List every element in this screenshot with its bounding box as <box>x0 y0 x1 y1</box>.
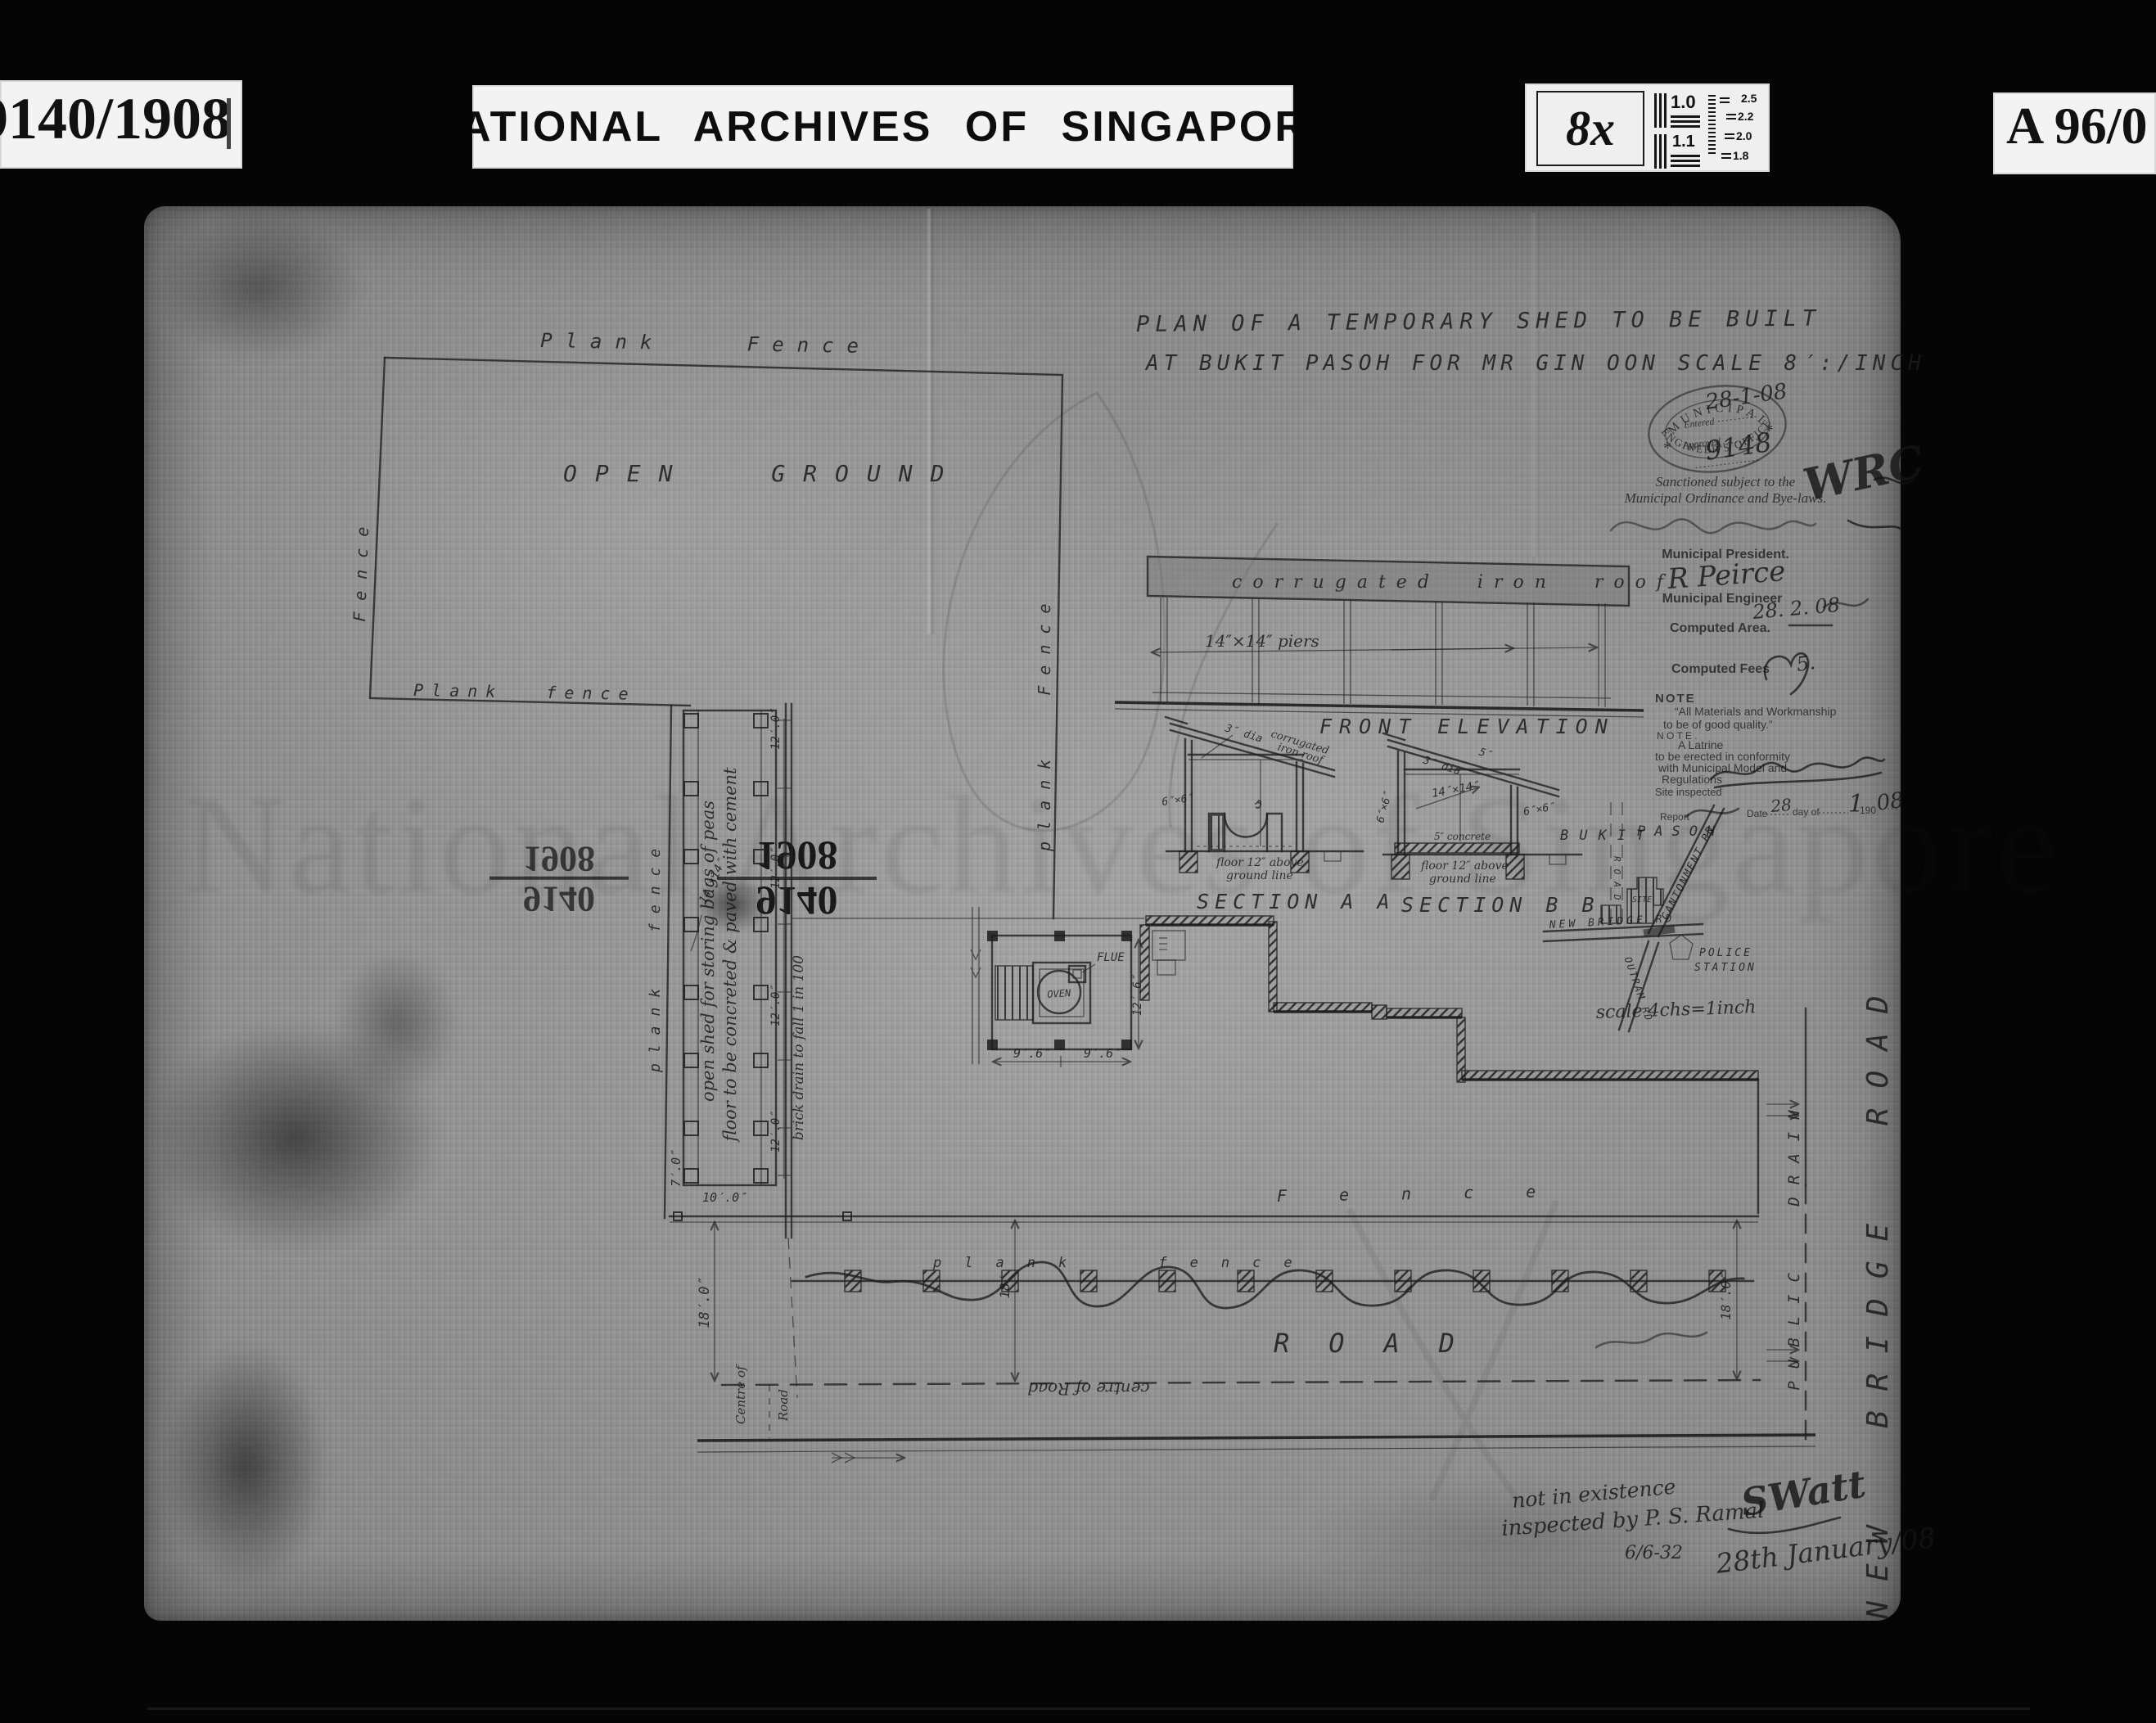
post-size-label: 6″×6″ <box>1522 801 1556 819</box>
shed-bay-dimension: 12′.0″ <box>769 847 783 889</box>
post-size-label: 14″×14″ <box>1431 779 1481 801</box>
new-bridge-road-label: NEW BRIDGE ROAD <box>1861 976 1895 1619</box>
note-quality-line1: “All Materials and Workmanship <box>1675 705 1837 718</box>
floor-note: ground line <box>1429 873 1496 886</box>
plank-fence-letters-mid: plank fence <box>932 1255 1315 1271</box>
brick-drain: brick drain to fall 1 in 100 <box>786 704 807 1398</box>
date-label: Date <box>1747 808 1768 819</box>
sanction-line1: Sanctioned subject to the <box>1656 474 1796 489</box>
shed-use-note-line1: open shed for storing bags of peas <box>698 801 718 1102</box>
shed-width-dimension: 10′.0″ <box>702 1190 747 1205</box>
floor-note: floor 12″ above <box>1420 859 1509 873</box>
sanction-line2: Municipal Ordinance and Bye-laws. <box>1624 490 1827 506</box>
fence-label-left: Fence <box>350 515 373 622</box>
boundary-wall <box>1140 916 1758 1213</box>
front-elevation-caption: FRONT ELEVATION <box>1319 715 1615 738</box>
concrete-note: 5″ concrete <box>1434 831 1491 842</box>
computed-area-label: Computed Area. <box>1670 621 1770 635</box>
day-of-label: day of <box>1793 806 1820 818</box>
latrine-outline <box>1152 931 1185 960</box>
centre-of-road-vertical-2: Road <box>776 1389 791 1422</box>
date-year-print: 190 <box>1860 805 1876 816</box>
corrugated-roof-label: corrugated iron roof <box>1232 572 1674 593</box>
plank-fence-label-right: plank Fence <box>1035 593 1054 852</box>
road-setback-dimension-left: 18′.0″ <box>697 1278 713 1328</box>
post-size-label: 6″×6″ <box>1161 792 1194 809</box>
road-setback-dimension-mid: 18′ <box>997 1275 1013 1299</box>
open-shed: 12′.0″ 12′.0″ 12′.0″ 12′.0″ 10′.0″ 14″×1… <box>669 708 791 1205</box>
computed-fees-value: 5. <box>1795 651 1817 676</box>
archival-scan-page: 9140/1908 NATIONAL ARCHIVES OF SINGAPORE… <box>0 0 2156 1723</box>
plan-date: 28th January/08 <box>1713 1521 1937 1580</box>
stamp-approved-number: 9148 <box>1703 426 1774 467</box>
note-block: NOTE “All Materials and Workmanship to b… <box>1655 692 1906 823</box>
shed-bay-dimension: 12′.0″ <box>769 985 783 1026</box>
section-bb-caption: SECTION B B <box>1401 893 1600 917</box>
piers-dimension-label: 14″×14″ piers <box>1205 631 1319 651</box>
floor-note: ground line <box>1226 869 1293 882</box>
president-signature <box>1611 519 1815 533</box>
bukit-pasoh-road-label: ROAD <box>1612 856 1622 908</box>
elevation-posts <box>1161 598 1605 707</box>
section-bb: 5″ 3″ dia 14″×14″ 6″×6″ 6″×6″ 5″ concret… <box>1374 733 1599 917</box>
flue-label: FLUE <box>1097 951 1125 964</box>
note-heading: NOTE <box>1655 692 1696 706</box>
plank-fence-label-bottom: Plank fence <box>413 680 637 704</box>
oven-dimension: 9′.6″ <box>1084 1046 1121 1061</box>
plan-title-line1: PLAN OF A TEMPORARY SHED TO BE BUILT <box>1136 306 1821 337</box>
plan-drawing: PLAN OF A TEMPORARY SHED TO BE BUILT AT … <box>0 0 2156 1723</box>
shed-use-note-line2: floor to be concreted & paved with cemen… <box>720 767 740 1143</box>
note-quality-line2: to be of good quality.” <box>1663 718 1773 731</box>
road-setback-dimension-right: 18′.0″ <box>1718 1273 1734 1320</box>
plank-fence-label-top: Plank Fence <box>540 329 872 358</box>
reviewer-initials: WRC <box>1798 435 1928 529</box>
plan-title: PLAN OF A TEMPORARY SHED TO BE BUILT AT … <box>1136 306 1926 376</box>
road-annotation-scribble <box>1596 1333 1707 1347</box>
date-day-hand: 28 <box>1769 795 1792 816</box>
section-aa: 3″ dia corrugated iron roof 6″×6″ floor … <box>1161 717 1395 913</box>
centre-of-road-label: centre of Road <box>1027 1379 1149 1399</box>
approver-signature: SWatt <box>1738 1462 1869 1525</box>
shed-bay-dimension: 12′.0″ <box>769 1111 783 1152</box>
open-ground-label: OPEN GROUND <box>563 460 962 487</box>
police-station-building <box>1670 935 1693 959</box>
computed-fees-label: Computed Fees <box>1671 662 1770 676</box>
shed-bay-dimension: 12′.0″ <box>769 708 783 750</box>
oven-label: OVEN <box>1047 987 1072 1000</box>
scan-edge-line <box>147 1707 2030 1710</box>
front-elevation: corrugated iron roof 14″×14″ piers FRONT… <box>1115 557 1674 738</box>
fence-letters: F e n c e <box>1277 1181 1558 1206</box>
section-aa-caption: SECTION A A <box>1197 890 1396 913</box>
key-map-scale: scale 4chs=1inch <box>1595 997 1756 1023</box>
oven-dimension: 9′.6″ <box>1013 1046 1051 1061</box>
dim-5-label: 5″ <box>1477 746 1494 762</box>
plank-fence-label-lower-left: plank fence <box>647 839 664 1073</box>
floor-note: floor 12″ above <box>1216 856 1304 869</box>
brick-drain-label: brick drain to fall 1 in 100 <box>791 955 807 1140</box>
road-label: ROAD <box>1274 1328 1494 1359</box>
public-drain-label: PUBLIC DRAIN <box>1785 1098 1803 1390</box>
inspection-date: 6/6-32 <box>1625 1543 1683 1563</box>
site-label: SITE <box>1632 895 1652 904</box>
police-station-label: STATION <box>1694 962 1757 974</box>
dimension-7-0: 7′.0″ <box>669 1149 683 1187</box>
date-year-hand: 08 <box>1875 788 1906 816</box>
key-map: BUKIT PASOH ROAD CANTONMENT RD NEW BRIDG… <box>1544 802 1757 1031</box>
road-centre-line <box>722 1380 1760 1385</box>
post-size-label: 6″×6″ <box>1374 790 1395 824</box>
plan-title-line2: AT BUKIT PASOH FOR MR GIN OON SCALE 8′:/… <box>1144 351 1926 376</box>
roof-dia-label: 3″ dia <box>1223 722 1264 745</box>
note-latrine-line4: Regulations <box>1662 773 1722 786</box>
site-inspected-label: Site inspected <box>1655 786 1722 798</box>
oven-enclosure: OVEN FLUE 9′.6″ 9′.6″ 12′.6″ <box>792 907 1144 1067</box>
police-station-label: POLICE <box>1699 947 1752 959</box>
centre-of-road-vertical-1: Centre of <box>733 1364 748 1424</box>
